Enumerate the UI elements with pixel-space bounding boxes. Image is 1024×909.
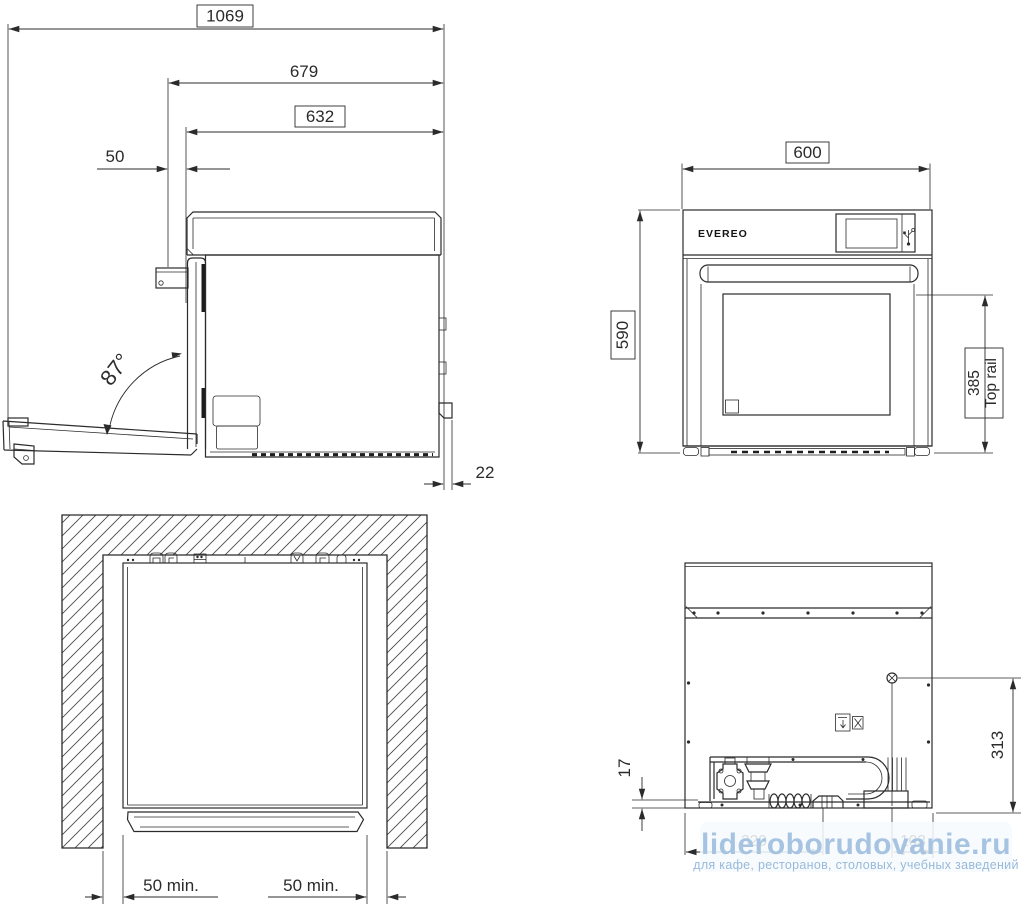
dim-height-590: 590 — [611, 210, 680, 453]
dim-front-offset-50: 50 — [97, 147, 230, 169]
dim-50-label: 50 — [106, 147, 125, 166]
door-handle-tab — [14, 444, 34, 464]
side-top-cover — [187, 212, 441, 255]
dim-door-open-679: 679 — [168, 62, 443, 267]
dim-connection-height-313: 313 — [898, 678, 1021, 813]
corrugated-hose — [769, 794, 811, 808]
dim-17-label: 17 — [615, 759, 634, 778]
front-cabinet — [683, 210, 932, 446]
plan-view: 50 min. 50 min. — [62, 515, 427, 904]
dim-overall-1069: 1069 — [8, 5, 444, 490]
water-tank-lower — [217, 426, 258, 449]
pump — [717, 758, 743, 799]
rear-machinery — [698, 757, 930, 808]
watermark-tagline: для кафе, ресторанов, столовых, учебных … — [693, 858, 1018, 872]
dim-679-label: 679 — [290, 62, 318, 81]
door-handle — [700, 265, 918, 282]
dim-313-label: 313 — [988, 731, 1007, 759]
control-display — [836, 214, 915, 252]
front-view: EVEREO — [611, 142, 1003, 456]
dim-600-label: 600 — [793, 143, 821, 162]
dim-22-label: 22 — [476, 463, 495, 482]
dim-1069-label: 1069 — [206, 7, 244, 26]
rear-foot — [439, 403, 452, 418]
side-oven-body — [206, 255, 453, 457]
dim-right-clearance: 50 min. — [268, 835, 406, 904]
dim-50min-right-label: 50 min. — [283, 876, 339, 895]
rear-tab-lower — [439, 362, 446, 374]
watermark: lideroborudovanie.ru для кафе, ресторано… — [693, 822, 1018, 872]
drawing-canvas: 87° 1069 679 632 50 — [0, 0, 1024, 909]
rear-panel — [685, 563, 932, 808]
dim-rear-clearance-22: 22 — [424, 420, 494, 490]
plan-oven-body — [123, 563, 367, 808]
window-corner-detail — [726, 400, 739, 413]
niche-walls — [62, 515, 427, 848]
dim-left-clearance: 50 min. — [85, 835, 218, 904]
rear-view: 17 313 320 103 — [615, 563, 1021, 858]
side-open-door — [3, 418, 197, 464]
dim-width-600: 600 — [682, 142, 930, 209]
side-view: 87° 1069 679 632 50 — [3, 5, 494, 490]
front-base — [683, 446, 932, 456]
dim-body-depth-632: 632 — [186, 106, 443, 303]
rear-rivets — [687, 611, 930, 743]
door-angle-annotation: 87° — [95, 349, 182, 435]
watermark-site: lideroborudovanie.ru — [701, 828, 1011, 861]
dim-632-label: 632 — [306, 107, 334, 126]
dim-50min-left-label: 50 min. — [143, 876, 199, 895]
door-angle-label: 87° — [95, 349, 135, 391]
brand-logo: EVEREO — [698, 228, 748, 240]
dim-590-label: 590 — [613, 321, 632, 349]
dim-top-rail-385: 385 Top rail — [916, 295, 1003, 453]
electrical-symbols — [836, 714, 864, 731]
valve-assembly — [745, 757, 771, 799]
usb-port-icon — [903, 229, 915, 246]
top-rail-label: Top rail — [983, 358, 1000, 408]
dim-385-label: 385 — [966, 370, 983, 396]
plan-door-bar — [128, 812, 364, 832]
rear-tab-upper — [439, 318, 446, 330]
technical-drawing-oven: 87° 1069 679 632 50 — [0, 0, 1024, 909]
display-screen — [846, 219, 897, 248]
foot-left — [684, 448, 699, 456]
water-tank-upper — [213, 396, 260, 426]
foot-right — [915, 448, 930, 456]
door-window — [723, 294, 890, 415]
front-door — [687, 259, 928, 446]
